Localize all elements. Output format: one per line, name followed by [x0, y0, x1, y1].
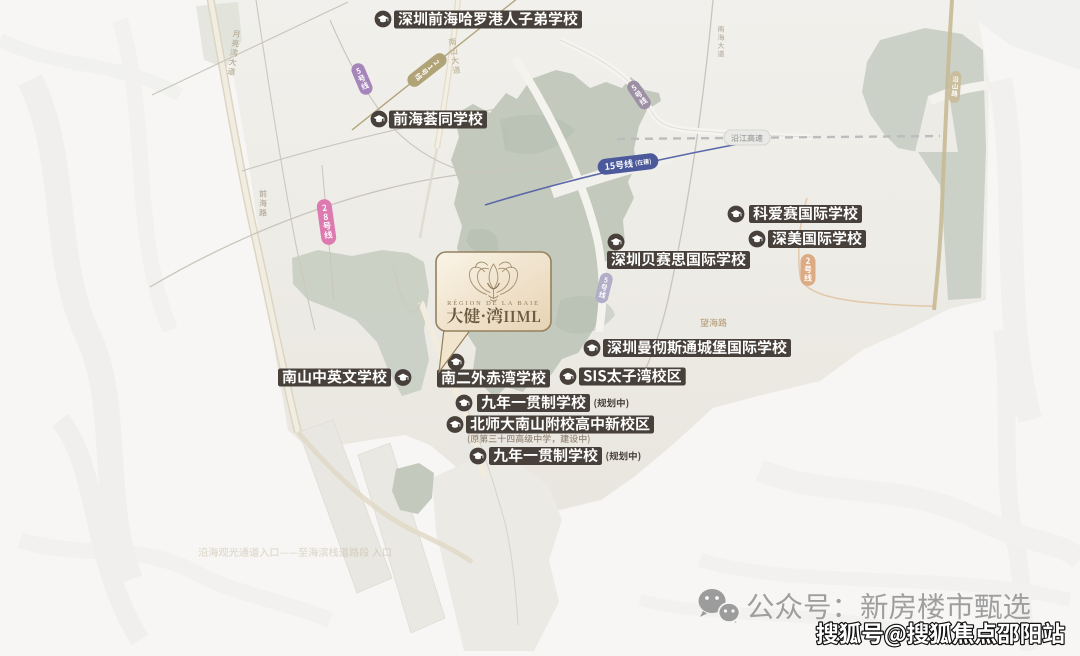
- svg-text:RÉGION DE LA BAIE: RÉGION DE LA BAIE: [447, 299, 540, 307]
